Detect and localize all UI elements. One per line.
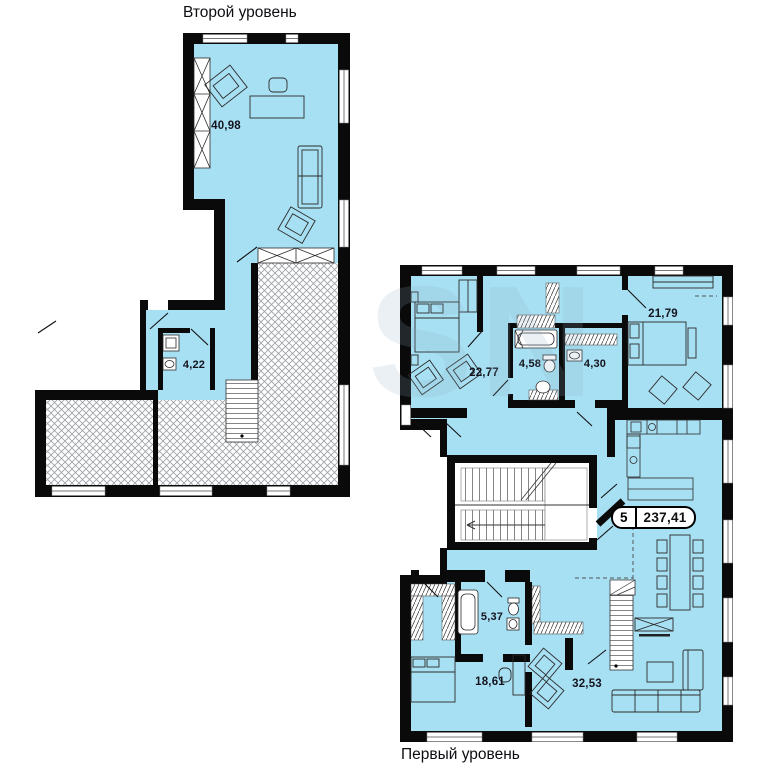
upper-plan-title: Второй уровень [183,4,297,22]
rooms-count: 5 [613,508,637,527]
room-area-label: 4,58 [519,358,541,370]
room-area-label: 4,30 [584,358,606,370]
apartment-badge: 5 237,41 [611,506,696,529]
room-area-label: 4,22 [183,359,205,371]
bathroom-4-30-fixtures [567,350,582,361]
communal-stairwell [447,455,597,550]
room-area-label: 21,79 [648,308,678,320]
lower-floorplan [395,260,740,748]
upper-floorplan [30,28,355,503]
stairs-to-first-level [226,380,258,442]
lower-plan-title: Первый уровень [401,746,520,764]
room-area-label: 32,53 [572,678,602,690]
room-area-label: 5,37 [481,611,503,623]
room-area-label: 18,61 [475,676,505,688]
internal-stairs [610,580,635,670]
floorplan-canvas: Второй уровень [0,0,780,780]
room-area-label: 40,98 [211,120,241,132]
total-area: 237,41 [637,508,694,527]
room-area-label: 22,77 [469,367,499,379]
